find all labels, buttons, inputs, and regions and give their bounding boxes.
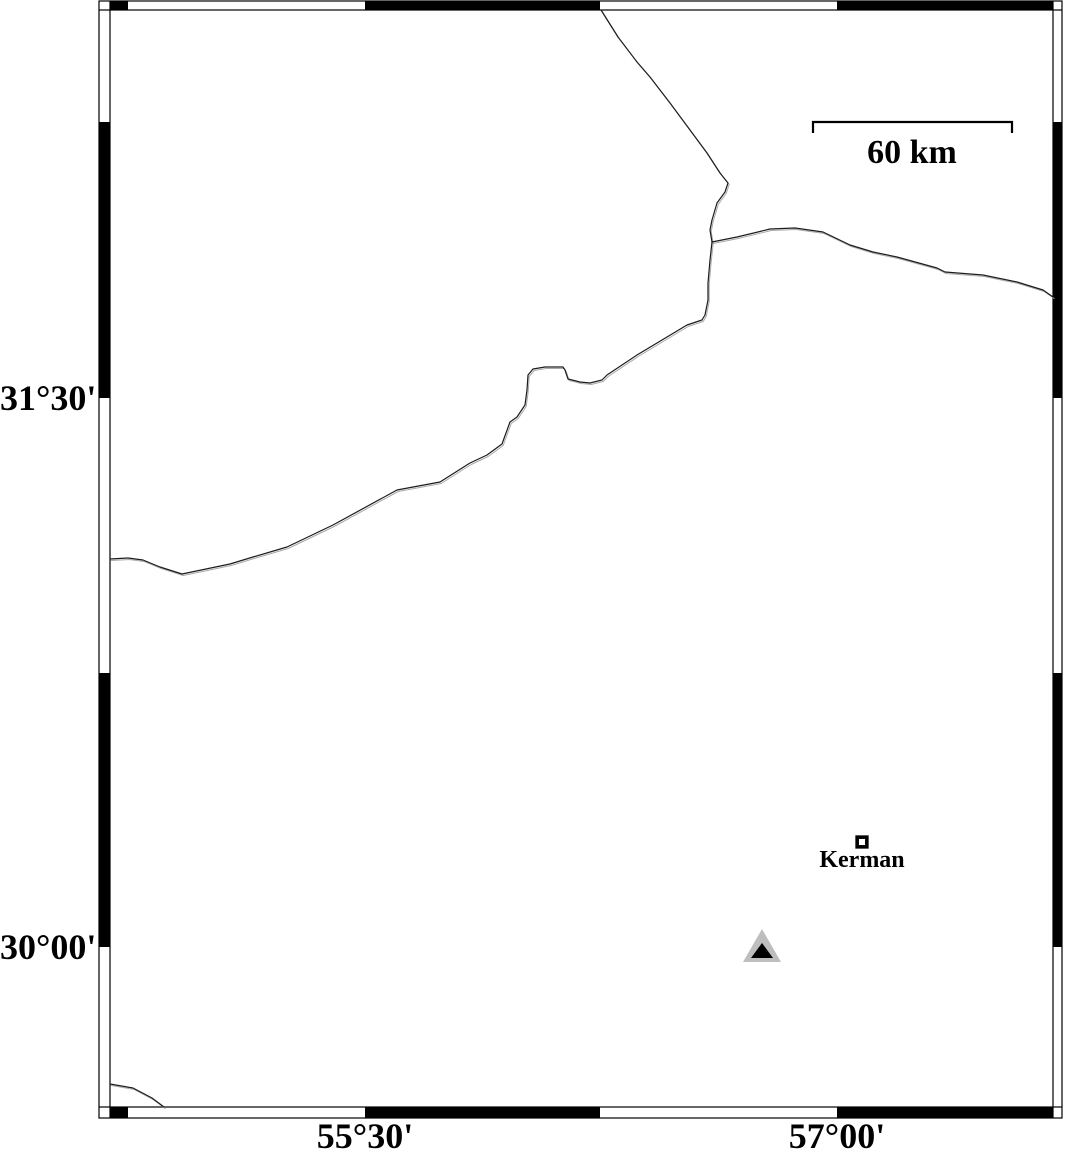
latitude-label-30-00: 30°00' [0, 926, 90, 968]
city-label: Kerman [770, 846, 954, 874]
scale-bar-label: 60 km [820, 131, 1004, 175]
frame-black-segment-left [99, 673, 110, 947]
frame-black-segment-bottom [110, 1107, 128, 1118]
frame-black-segment-right [1053, 673, 1062, 947]
frame-black-segment-top [110, 1, 128, 10]
latitude-label-31-30: 31°30' [0, 377, 90, 419]
frame-black-segment-top [837, 1, 1053, 10]
map-figure: 31°30' 30°00' 55°30' 57°00' 60 km Kerman [0, 0, 1066, 1157]
longitude-label-57-00: 57°00' [745, 1113, 929, 1157]
frame-black-segment-left [99, 122, 110, 398]
frame-black-segment-right [1053, 122, 1062, 398]
frame-black-segment-top [365, 1, 600, 10]
longitude-label-55-30: 55°30' [273, 1113, 457, 1157]
